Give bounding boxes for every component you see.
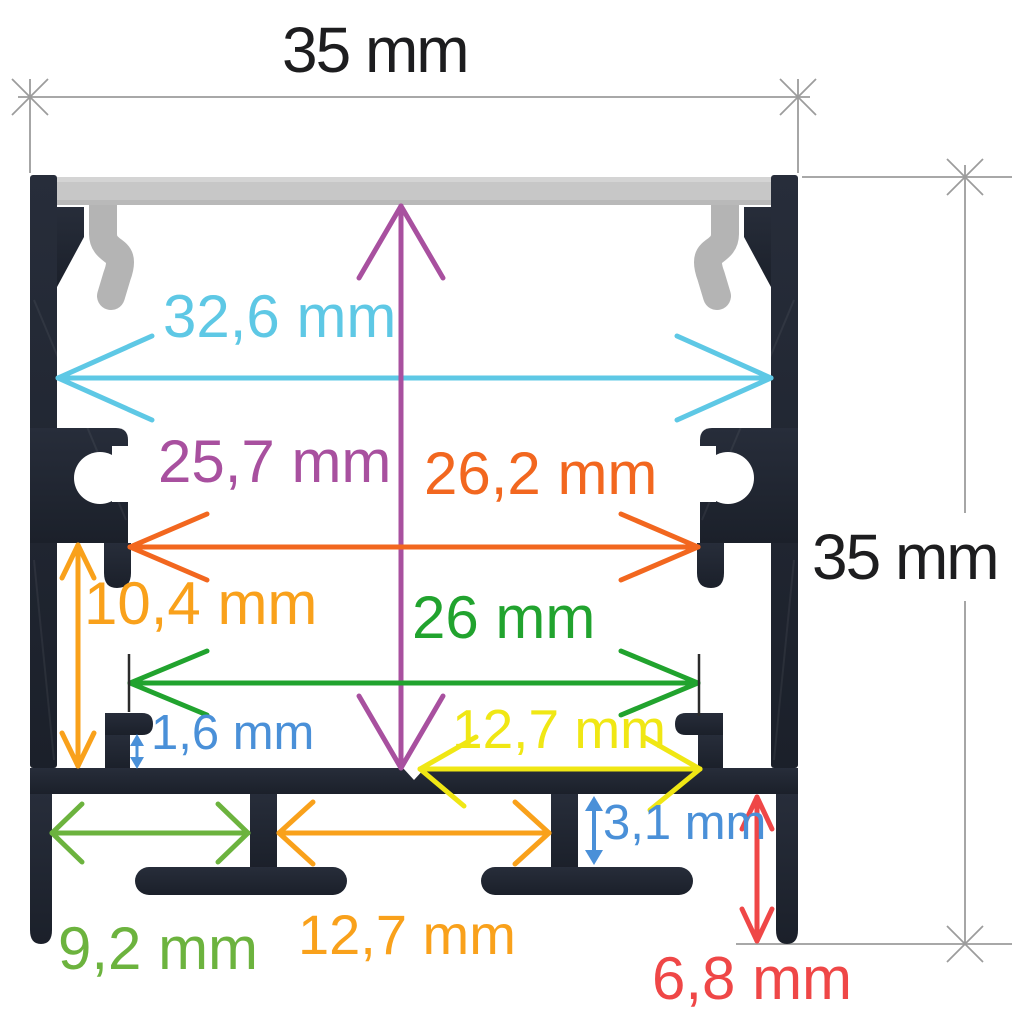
dim-label-foot-gap-outer: 9,2 mm — [58, 919, 258, 979]
dim-label-inner-height: 25,7 mm — [158, 432, 391, 492]
arrow-foot-gap-outer — [52, 804, 248, 862]
dim-label-ledge-span: 26 mm — [412, 588, 595, 648]
dim-label-foot-height: 6,8 mm — [652, 949, 852, 1009]
dim-label-inner-width-mid: 26,2 mm — [424, 444, 657, 504]
dim-label-ledge-lip-height: 1,6 mm — [151, 709, 314, 758]
dim-line-overall-width — [12, 79, 816, 173]
dim-label-inner-width-top: 32,6 mm — [163, 287, 396, 347]
dim-label-foot-web-height: 3,1 mm — [603, 799, 766, 848]
dim-label-center-to-ledge: 12,7 mm — [452, 702, 666, 757]
profile-diagram-canvas — [0, 0, 1024, 1024]
dim-label-lower-chamber-height: 10,4 mm — [84, 574, 317, 634]
dim-label-foot-gap-center: 12,7 mm — [298, 907, 516, 963]
diffuser-cover — [57, 177, 771, 205]
diffuser-clip-left — [103, 202, 120, 296]
arrow-foot-web-height — [585, 796, 603, 865]
dim-label-overall-height: 35 mm — [806, 513, 1004, 601]
diffuser-clip-right — [708, 202, 725, 296]
arrow-foot-gap-center — [279, 802, 549, 864]
arrow-ledge-lip-height — [130, 734, 144, 769]
dimension-diagram: 35 mm 35 mm 32,6 mm 25,7 mm 26,2 mm 10,4… — [0, 0, 1024, 1024]
dim-label-overall-width: 35 mm — [282, 18, 468, 82]
